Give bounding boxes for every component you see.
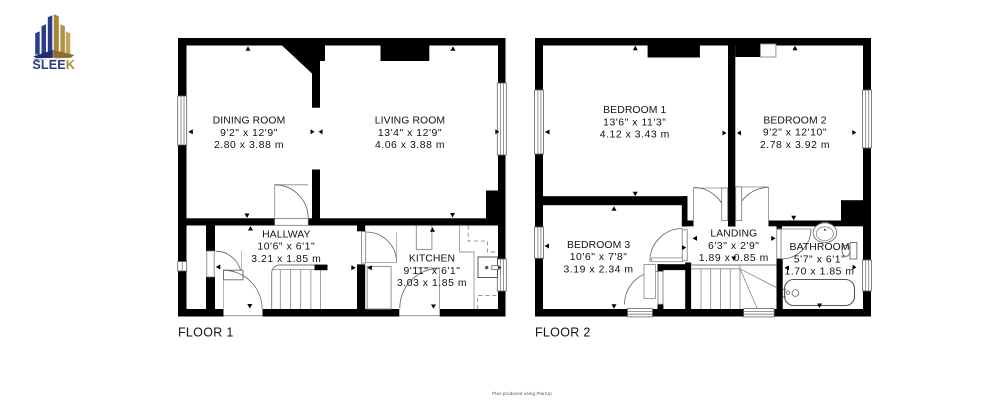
svg-text:9'11" x 6'1": 9'11" x 6'1" (403, 266, 460, 277)
svg-text:5'7" x 6'1": 5'7" x 6'1" (794, 254, 845, 265)
svg-text:DINING ROOM: DINING ROOM (213, 116, 286, 127)
svg-text:9'2" x 12'10": 9'2" x 12'10" (763, 128, 827, 139)
svg-text:FLOOR 1: FLOOR 1 (178, 326, 234, 340)
svg-text:SLEEK: SLEEK (32, 58, 75, 72)
svg-text:4.12 x 3.43 m: 4.12 x 3.43 m (600, 130, 670, 141)
svg-text:FLOOR 2: FLOOR 2 (535, 326, 591, 340)
svg-text:LIVING ROOM: LIVING ROOM (375, 116, 445, 127)
svg-text:9'2" x 12'9": 9'2" x 12'9" (220, 128, 278, 139)
svg-text:3.21 x 1.85 m: 3.21 x 1.85 m (251, 254, 321, 265)
svg-text:2.80 x 3.88 m: 2.80 x 3.88 m (214, 140, 284, 151)
svg-text:KITCHEN: KITCHEN (409, 254, 455, 265)
svg-text:10'6" x 6'1": 10'6" x 6'1" (257, 242, 315, 253)
svg-text:LANDING: LANDING (710, 229, 757, 240)
svg-text:2.78 x 3.92 m: 2.78 x 3.92 m (760, 140, 830, 151)
svg-text:3.19 x 2.34 m: 3.19 x 2.34 m (564, 264, 634, 275)
svg-text:10'6" x 7'8": 10'6" x 7'8" (570, 252, 628, 263)
svg-text:BEDROOM 1: BEDROOM 1 (603, 105, 666, 116)
svg-text:BATHROOM: BATHROOM (790, 242, 850, 253)
svg-text:3.03 x 1.85 m: 3.03 x 1.85 m (397, 278, 467, 289)
svg-text:BEDROOM 3: BEDROOM 3 (567, 240, 630, 251)
svg-text:13'6" x 11'3": 13'6" x 11'3" (603, 117, 666, 128)
svg-text:Plan produced using PlanUp: Plan produced using PlanUp (492, 391, 552, 396)
svg-text:13'4" x 12'9": 13'4" x 12'9" (378, 128, 442, 139)
svg-text:BEDROOM 2: BEDROOM 2 (763, 115, 826, 126)
svg-text:1.70 x 1.85 m: 1.70 x 1.85 m (785, 267, 855, 278)
svg-text:1.89 x 0.85 m: 1.89 x 0.85 m (699, 253, 769, 264)
svg-text:6'3" x 2'9": 6'3" x 2'9" (708, 241, 759, 252)
svg-text:4.06 x 3.88 m: 4.06 x 3.88 m (375, 140, 445, 151)
svg-text:HALLWAY: HALLWAY (262, 230, 310, 241)
